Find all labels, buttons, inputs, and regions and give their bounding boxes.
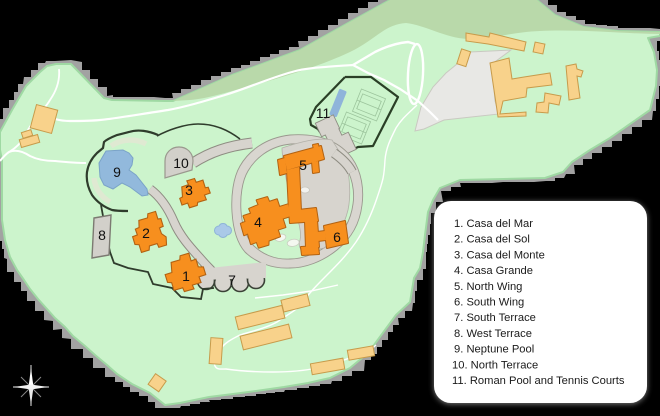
svg-text:3. Casa del Monte: 3. Casa del Monte (454, 249, 545, 261)
svg-text:10. North Terrace: 10. North Terrace (452, 359, 538, 371)
svg-text:11: 11 (316, 105, 331, 121)
svg-text:9: 9 (113, 164, 121, 180)
svg-text:10: 10 (173, 155, 189, 171)
svg-text:8. West Terrace: 8. West Terrace (454, 328, 532, 340)
svg-text:5. North Wing: 5. North Wing (454, 281, 522, 293)
svg-text:5: 5 (299, 157, 307, 173)
svg-text:3: 3 (185, 182, 193, 198)
svg-text:6. South Wing: 6. South Wing (454, 297, 524, 309)
svg-text:7. South Terrace: 7. South Terrace (454, 312, 536, 324)
svg-text:1: 1 (182, 268, 190, 284)
svg-text:4: 4 (254, 214, 262, 230)
svg-text:7: 7 (228, 272, 236, 288)
svg-text:2: 2 (142, 225, 150, 241)
svg-text:1. Casa del Mar: 1. Casa del Mar (454, 218, 533, 230)
svg-text:8: 8 (98, 227, 106, 243)
svg-text:11. Roman Pool and Tennis Cour: 11. Roman Pool and Tennis Courts (452, 375, 625, 387)
svg-text:2. Casa del Sol: 2. Casa del Sol (454, 234, 530, 246)
svg-text:9. Neptune Pool: 9. Neptune Pool (454, 344, 534, 356)
svg-text:6: 6 (333, 229, 341, 245)
svg-text:4. Casa Grande: 4. Casa Grande (454, 265, 533, 277)
